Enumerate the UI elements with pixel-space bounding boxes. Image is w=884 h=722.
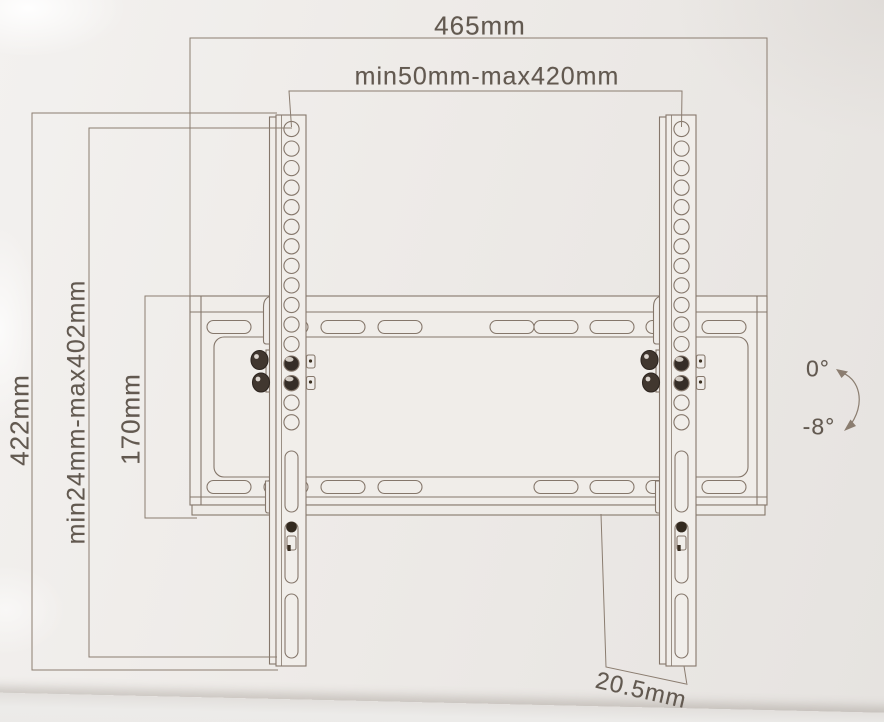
dim-horizontal-adjust-label: min50mm-max420mm xyxy=(355,63,620,92)
arrowhead-down-icon xyxy=(844,420,856,432)
dim-plate-height-lines xyxy=(145,296,197,518)
tilt-lower-label: -8° xyxy=(803,414,836,441)
tilt-arc-arrow xyxy=(836,369,859,431)
arrowhead-up-icon xyxy=(836,369,848,378)
dim-rail-length-label: 422mm xyxy=(5,374,36,466)
dim-plate-width-label: 465mm xyxy=(434,11,526,42)
dim-vertical-adjust-label: min24mm-max402mm xyxy=(63,280,92,545)
left-rail xyxy=(251,115,315,666)
right-rail xyxy=(641,115,705,666)
dim-horizontal-adjust-lines xyxy=(289,91,682,127)
tilt-upper-label: 0° xyxy=(806,356,830,383)
dim-plate-height-label: 170mm xyxy=(116,373,147,465)
mount-drawing xyxy=(0,0,884,722)
photographed-drawing: 465mm min50mm-max420mm 422mm min24mm-max… xyxy=(0,0,884,722)
